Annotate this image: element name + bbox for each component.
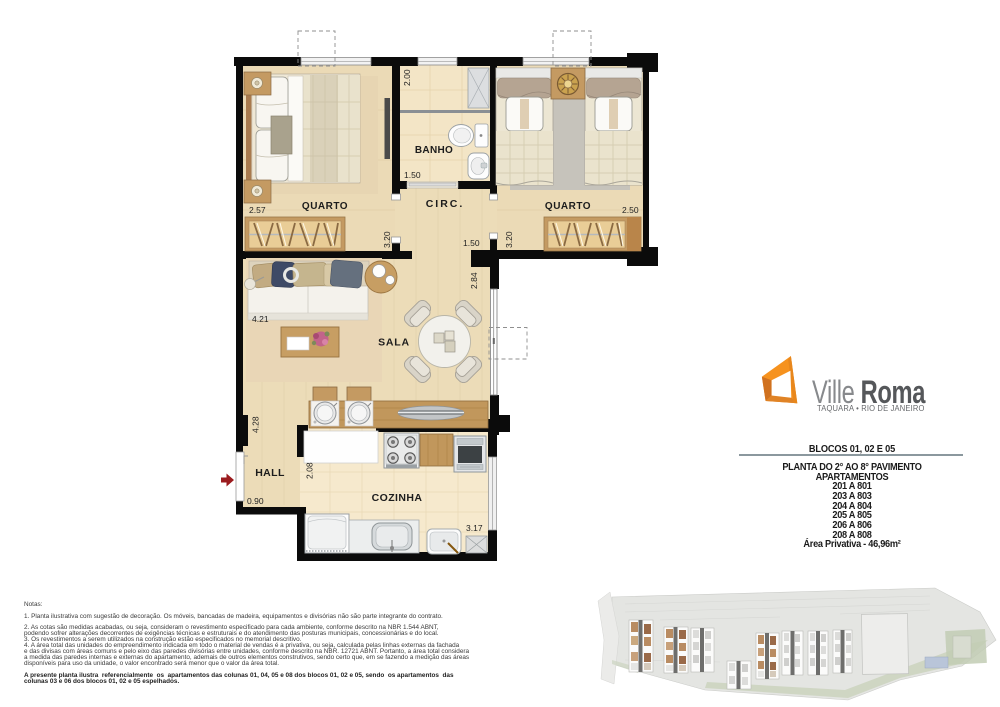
svg-text:2.00: 2.00 — [402, 69, 412, 86]
svg-text:3.17: 3.17 — [466, 523, 483, 533]
svg-text:1.50: 1.50 — [404, 170, 421, 180]
svg-text:COZINHA: COZINHA — [372, 492, 423, 504]
svg-text:2.57: 2.57 — [249, 205, 266, 215]
svg-text:2.08: 2.08 — [305, 462, 315, 479]
svg-text:QUARTO: QUARTO — [545, 201, 591, 212]
svg-text:SALA: SALA — [378, 337, 410, 349]
svg-text:BANHO: BANHO — [415, 145, 453, 156]
svg-text:4.21: 4.21 — [252, 314, 269, 324]
svg-text:3.20: 3.20 — [504, 231, 514, 248]
svg-text:CIRC.: CIRC. — [426, 198, 465, 210]
svg-text:QUARTO: QUARTO — [302, 201, 348, 212]
svg-text:0.90: 0.90 — [247, 496, 264, 506]
svg-text:1.50: 1.50 — [463, 238, 480, 248]
svg-text:4.28: 4.28 — [251, 416, 261, 433]
svg-text:3.20: 3.20 — [382, 231, 392, 248]
svg-text:2.50: 2.50 — [622, 205, 639, 215]
svg-text:HALL: HALL — [255, 467, 285, 479]
svg-text:2.84: 2.84 — [469, 272, 479, 289]
